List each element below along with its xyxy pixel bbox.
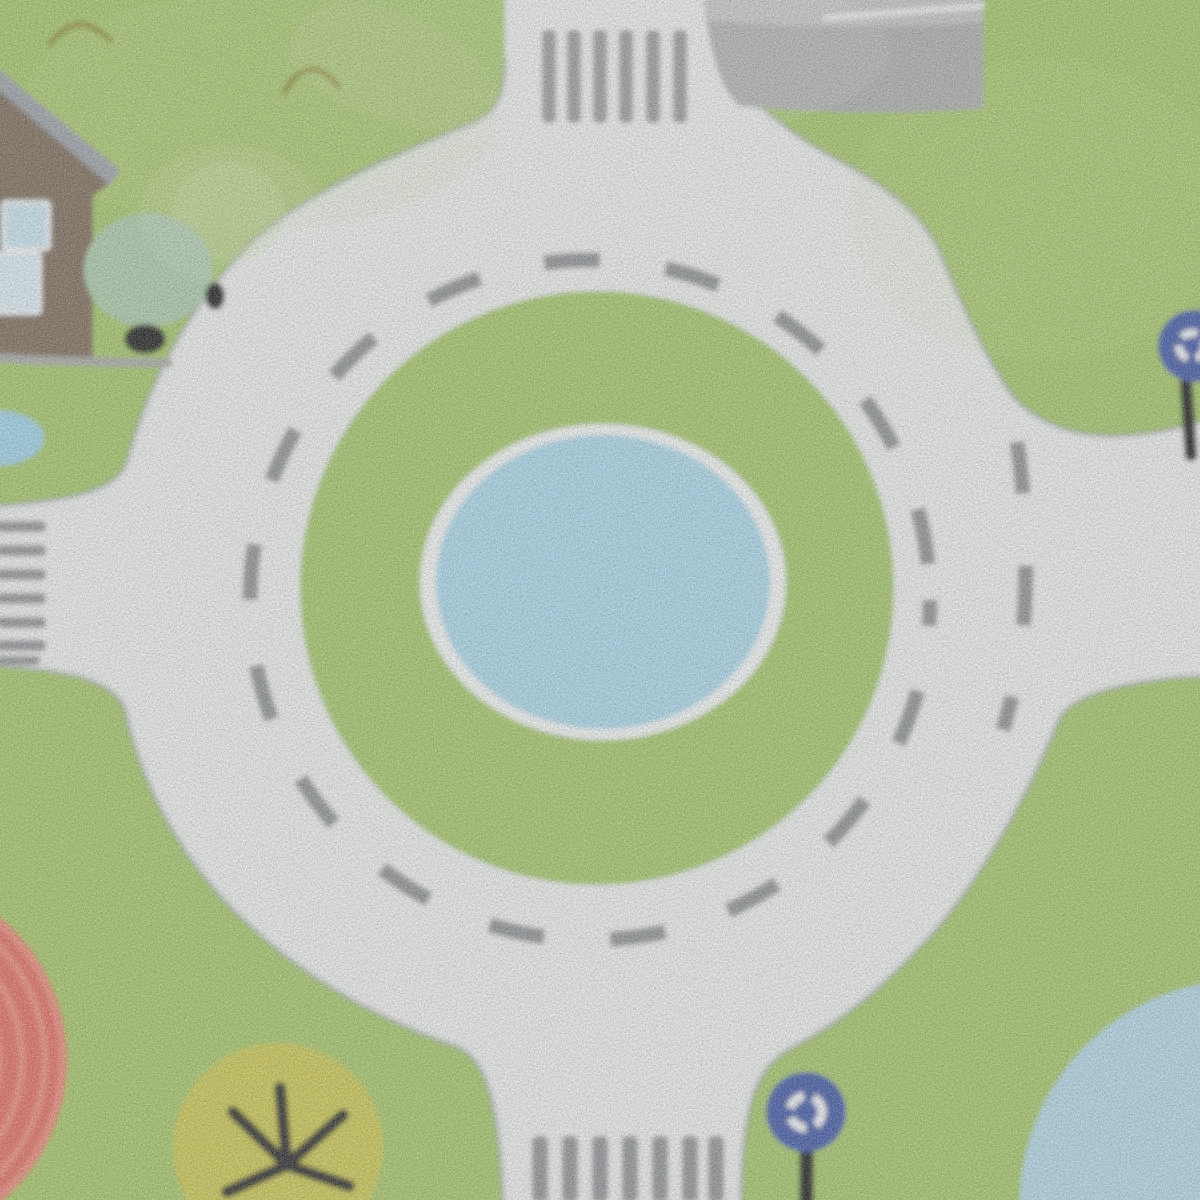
carpet-texture-dark: [0, 0, 1200, 1200]
play-rug-photo: [0, 0, 1200, 1200]
rug-scene: [0, 0, 1200, 1200]
